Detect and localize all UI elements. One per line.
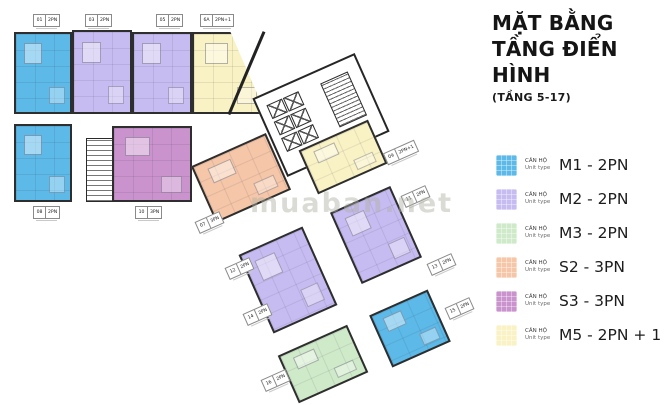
unit-tag: 092PN+1 [383, 140, 419, 166]
legend-label: M2 - 2PN [559, 190, 629, 208]
legend-label: M1 - 2PN [559, 156, 629, 174]
unit-m2-top-2 [132, 32, 192, 114]
legend-item-m5: CĂN HỘ Unit type M5 - 2PN + 1 [496, 318, 672, 352]
unit-tag: 082PN [33, 206, 60, 219]
legend-label: S3 - 3PN [559, 292, 625, 310]
legend-item-s2: CĂN HỘ Unit type S2 - 3PN [496, 250, 672, 284]
unit-tag: 152PN [445, 297, 475, 320]
unit-m3 [278, 325, 369, 403]
unit-tag: 103PN [135, 206, 162, 219]
legend-label: M3 - 2PN [559, 224, 629, 242]
unit-tag: 032PN [85, 14, 112, 27]
watermark: muaban.net [250, 188, 453, 219]
unit-tag: 6A2PN+1 [200, 14, 234, 27]
floorplan-drawing: 012PN 032PN 052PN 6A2PN+1 082PN 103PN 07… [0, 0, 492, 405]
unit-m1-top-left [14, 32, 72, 114]
title-subtitle: (TẦNG 5-17) [492, 91, 672, 104]
unit-m1-wing-bottom [369, 289, 451, 367]
info-panel: MẶT BẰNG TẦNG ĐIỂN HÌNH (TẦNG 5-17) CĂN … [492, 0, 672, 405]
legend-item-m3: CĂN HỘ Unit type M3 - 2PN [496, 216, 672, 250]
unit-m1-lower-left [14, 124, 72, 202]
legend-item-s3: CĂN HỘ Unit type S3 - 3PN [496, 284, 672, 318]
legend-label: S2 - 3PN [559, 258, 625, 276]
legend-caption: CĂN HỘ Unit type [525, 226, 555, 241]
legend-color-chip-m1 [496, 155, 517, 176]
legend-color-chip-m2 [496, 189, 517, 210]
unit-m2-top-1 [72, 30, 132, 114]
legend-caption: CĂN HỘ Unit type [525, 294, 555, 309]
unit-tag: 132PN [427, 253, 457, 276]
stairs-icon [320, 71, 367, 127]
unit-tag: 052PN [156, 14, 183, 27]
legend-caption: CĂN HỘ Unit type [525, 158, 555, 173]
title-line-1: MẶT BẰNG [492, 10, 672, 36]
unit-tag: 012PN [33, 14, 60, 27]
legend-caption: CĂN HỘ Unit type [525, 328, 555, 343]
floorplan-page: 012PN 032PN 052PN 6A2PN+1 082PN 103PN 07… [0, 0, 672, 405]
legend-color-chip-m3 [496, 223, 517, 244]
legend-caption: CĂN HỘ Unit type [525, 192, 555, 207]
legend-color-chip-m5 [496, 325, 517, 346]
legend-color-chip-s3 [496, 291, 517, 312]
legend-item-m2: CĂN HỘ Unit type M2 - 2PN [496, 182, 672, 216]
legend-caption: CĂN HỘ Unit type [525, 260, 555, 275]
unit-s3 [112, 126, 192, 202]
legend-color-chip-s2 [496, 257, 517, 278]
page-title: MẶT BẰNG TẦNG ĐIỂN HÌNH [492, 10, 672, 88]
unit-tag: 073PN [195, 211, 225, 234]
legend-item-m1: CĂN HỘ Unit type M1 - 2PN [496, 148, 672, 182]
title-line-2: TẦNG ĐIỂN HÌNH [492, 36, 672, 88]
legend-label: M5 - 2PN + 1 [559, 326, 661, 344]
unit-tag: 162PN [261, 369, 291, 392]
legend: CĂN HỘ Unit type M1 - 2PN CĂN HỘ Unit ty… [496, 148, 672, 352]
stair-core-left [86, 138, 114, 202]
